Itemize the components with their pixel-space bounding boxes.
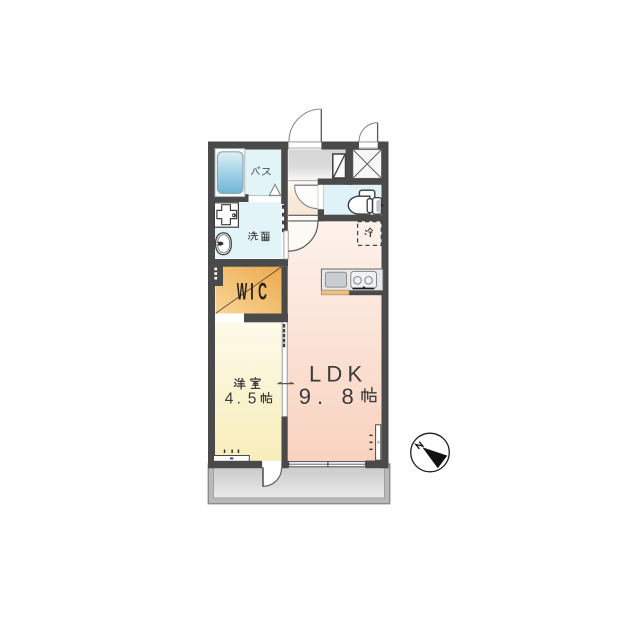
svg-text:.: . bbox=[317, 384, 323, 409]
svg-text:LDK: LDK bbox=[309, 362, 367, 387]
svg-text:5: 5 bbox=[248, 390, 257, 407]
svg-text:C: C bbox=[258, 278, 267, 306]
svg-text:9: 9 bbox=[299, 384, 311, 409]
svg-text:W: W bbox=[237, 279, 247, 306]
svg-text:4: 4 bbox=[225, 390, 234, 407]
svg-text:.: . bbox=[237, 390, 241, 407]
svg-text:8: 8 bbox=[342, 384, 354, 409]
svg-text:I: I bbox=[250, 278, 253, 306]
